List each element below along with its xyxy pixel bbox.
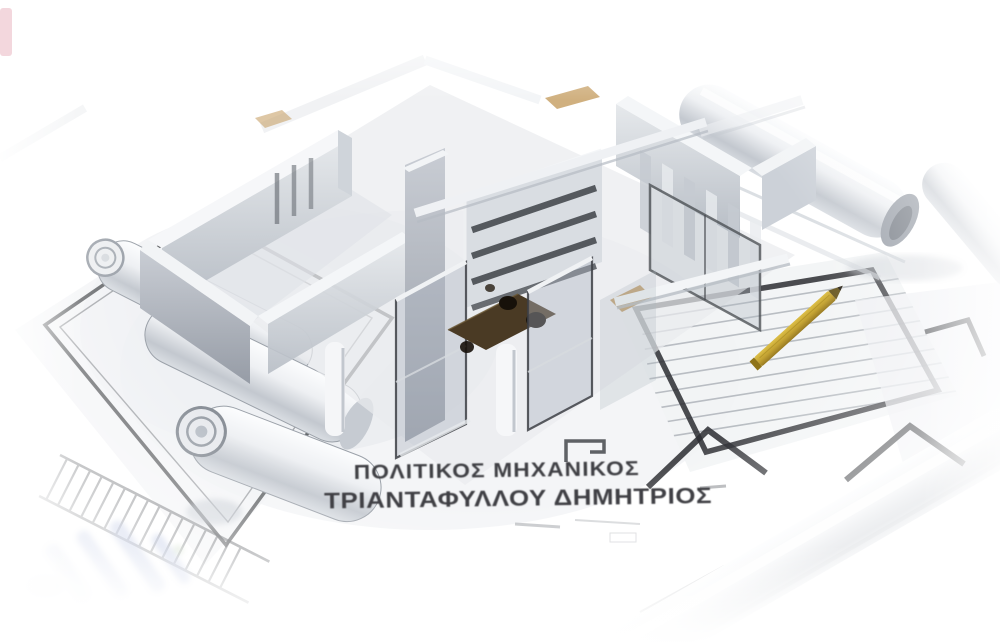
engineer-title-text: ΠΟΛΙΤΙΚΟΣ ΜΗΧΑΝΙΚΟΣ <box>354 458 640 484</box>
white-vignette <box>0 0 1000 642</box>
architectural-render: ΠΟΛΙΤΙΚΟΣ ΜΗΧΑΝΙΚΟΣ ΤΡΙΑΝΤΑΦΥΛΛΟΥ ΔΗΜΗΤΡ… <box>0 0 1000 642</box>
scan-artifact <box>0 8 12 56</box>
render-canvas: ΠΟΛΙΤΙΚΟΣ ΜΗΧΑΝΙΚΟΣ ΤΡΙΑΝΤΑΦΥΛΛΟΥ ΔΗΜΗΤΡ… <box>0 0 1000 642</box>
